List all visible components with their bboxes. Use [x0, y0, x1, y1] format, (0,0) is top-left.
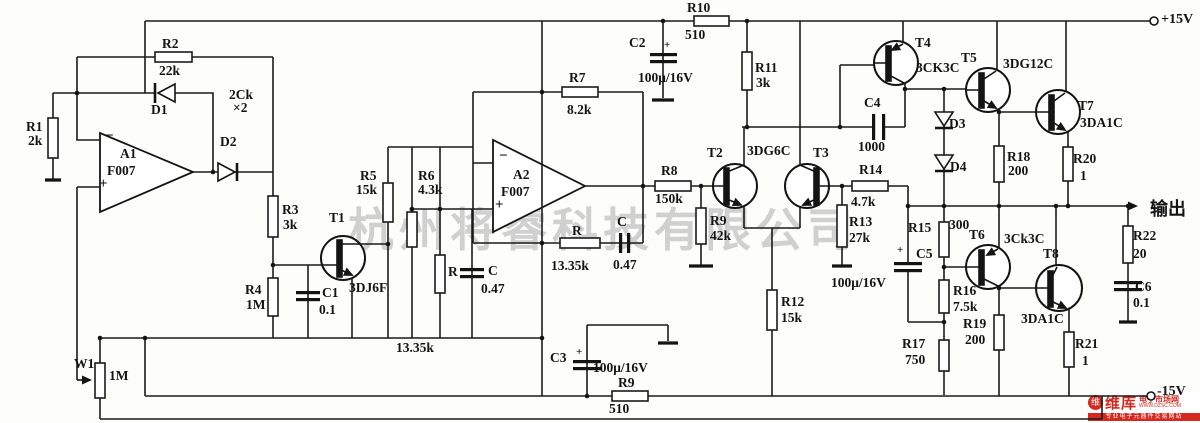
arrows [77, 206, 1136, 380]
resistor-Rfb-body [560, 238, 600, 248]
transistor-T1-circle [321, 236, 365, 280]
resistor-R2-body [155, 52, 192, 62]
resistor-R10-body [694, 16, 729, 26]
resistor-R18-body [994, 146, 1004, 182]
resistors [48, 16, 1133, 401]
diode-D4 [935, 155, 953, 171]
resistor-R17-body [939, 340, 949, 371]
resistor-R22-body [1123, 226, 1133, 263]
terminal-minus15-circle [1147, 392, 1155, 400]
ground-bars [45, 100, 1137, 343]
capacitor-C5 [894, 262, 922, 272]
resistor-R5-body [383, 183, 393, 222]
capacitor-C4 [872, 114, 885, 140]
resistor-R16-body [939, 280, 949, 313]
resistor-R4-body [268, 278, 278, 316]
terminals [1147, 17, 1158, 400]
schematic-canvas: 杭州将睿科技有限公司 维 维库 电子市场网 WWW.DZSC.COM 专业电子元… [0, 0, 1200, 423]
opamp-A2 [493, 140, 585, 232]
resistor-R15-body [939, 222, 949, 257]
resistor-R9a-body [696, 208, 706, 244]
transistor-internals [321, 44, 1066, 308]
terminal-plus15-circle [1150, 17, 1158, 25]
resistor-R11-body [742, 52, 752, 90]
resistor-R13-body [837, 205, 847, 247]
resistor-R1-body [48, 118, 58, 158]
capacitors [296, 53, 1142, 370]
resistor-R8-body [655, 181, 691, 191]
diodes [155, 83, 953, 181]
potentiometer-W1-body [95, 363, 105, 398]
resistor-R12-body [767, 290, 777, 330]
circuit-drawing [0, 0, 1200, 423]
resistor-Rmid-body [435, 255, 445, 293]
resistor-R21-body [1064, 332, 1074, 367]
resistor-R9b-body [612, 391, 648, 401]
diode-D2 [218, 163, 237, 181]
resistor-R6-body [407, 212, 417, 247]
opamp-A1 [100, 133, 193, 212]
resistor-R14-body [852, 181, 888, 191]
diode-D3 [935, 112, 953, 128]
resistor-R7-body [562, 87, 598, 97]
resistor-R19-body [994, 315, 1004, 350]
diode-D1 [155, 83, 175, 103]
resistor-R20-body [1063, 147, 1073, 181]
resistor-R3-body [268, 196, 278, 237]
